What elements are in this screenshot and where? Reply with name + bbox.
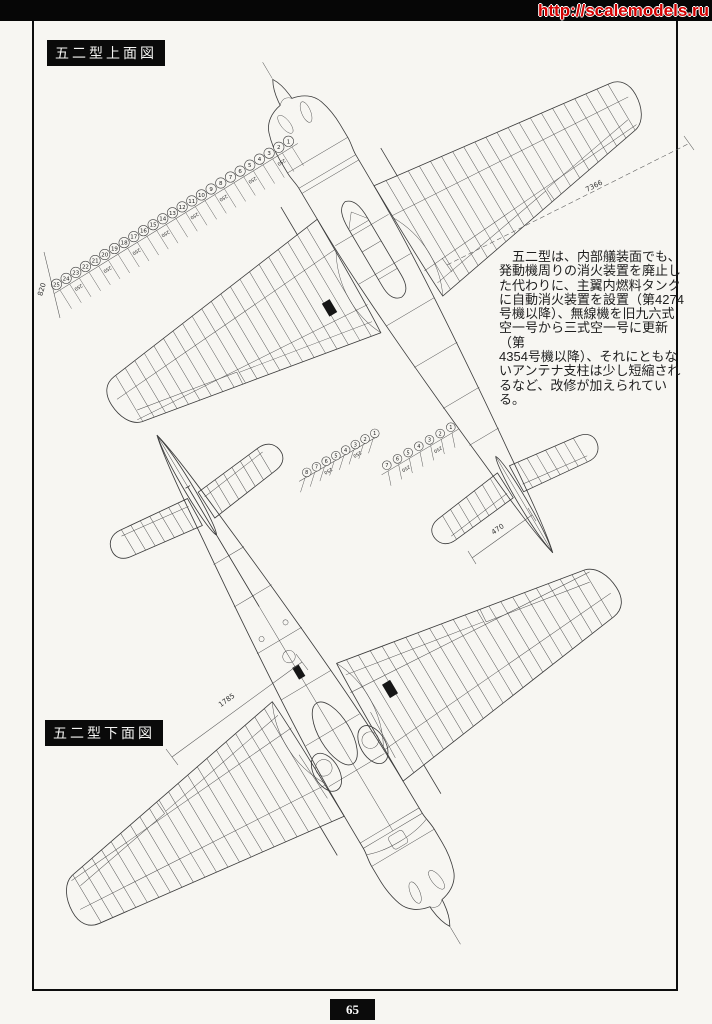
svg-text:17: 17 bbox=[130, 235, 137, 241]
svg-text:6: 6 bbox=[325, 459, 328, 465]
svg-text:250: 250 bbox=[432, 444, 443, 454]
svg-text:10: 10 bbox=[198, 193, 205, 199]
dimension-stabilizer: 470 bbox=[468, 508, 536, 564]
svg-text:13: 13 bbox=[169, 211, 176, 217]
svg-text:6: 6 bbox=[238, 169, 242, 175]
label-bottom-view: 五二型下面図 bbox=[45, 720, 163, 746]
svg-text:21: 21 bbox=[92, 258, 99, 264]
svg-text:5: 5 bbox=[407, 450, 410, 456]
svg-text:250: 250 bbox=[247, 175, 258, 185]
header-bar: http://scalemodels.ru bbox=[0, 0, 712, 21]
svg-text:20: 20 bbox=[101, 252, 108, 258]
svg-text:4: 4 bbox=[258, 157, 262, 163]
svg-text:3: 3 bbox=[354, 442, 357, 448]
svg-text:11: 11 bbox=[188, 199, 195, 205]
svg-text:250: 250 bbox=[160, 229, 171, 239]
svg-text:1: 1 bbox=[449, 425, 452, 431]
svg-text:16: 16 bbox=[140, 229, 147, 235]
svg-text:250: 250 bbox=[218, 193, 229, 203]
svg-text:7: 7 bbox=[315, 465, 318, 471]
svg-text:3: 3 bbox=[267, 151, 271, 157]
svg-text:5: 5 bbox=[248, 163, 252, 169]
svg-text:7: 7 bbox=[229, 175, 233, 181]
svg-text:2: 2 bbox=[277, 145, 281, 151]
svg-text:4: 4 bbox=[417, 444, 420, 450]
svg-text:4: 4 bbox=[344, 448, 347, 454]
svg-text:250: 250 bbox=[400, 463, 411, 473]
wingtip-dimension-label: 820 bbox=[36, 282, 47, 297]
svg-text:250: 250 bbox=[73, 282, 84, 292]
svg-text:24: 24 bbox=[63, 276, 70, 282]
svg-text:250: 250 bbox=[276, 157, 287, 167]
svg-text:14: 14 bbox=[159, 217, 166, 223]
svg-text:9: 9 bbox=[209, 187, 213, 193]
wing-station-numbers: 1225034525067825091011250121314250151617… bbox=[51, 136, 303, 309]
svg-text:7: 7 bbox=[385, 463, 388, 469]
svg-text:8: 8 bbox=[305, 470, 308, 476]
svg-text:3: 3 bbox=[428, 438, 431, 444]
site-url: http://scalemodels.ru bbox=[538, 0, 712, 21]
svg-text:250: 250 bbox=[189, 211, 200, 221]
stabilizer-station-numbers-top: 1225034525067 bbox=[382, 423, 459, 486]
svg-text:8: 8 bbox=[219, 181, 223, 187]
svg-text:2: 2 bbox=[439, 431, 442, 437]
svg-text:23: 23 bbox=[72, 270, 79, 276]
description-text: 五二型は、内部艤装面でも、 発動機周りの消火装置を廃止し た代わりに、主翼内燃料… bbox=[499, 250, 685, 407]
svg-text:25: 25 bbox=[53, 282, 60, 288]
svg-text:250: 250 bbox=[131, 246, 142, 256]
scanned-book-page: http://scalemodels.ru 五二型上面図 五二型下面図 五二型は… bbox=[0, 0, 712, 1024]
stabilizer-dimension-label: 470 bbox=[490, 522, 506, 536]
svg-text:2: 2 bbox=[363, 437, 366, 443]
aircraft-drawings: 1225034525067825091011250121314250151617… bbox=[0, 0, 712, 1024]
wing-span-dimension-label: 7366 bbox=[584, 178, 604, 193]
svg-text:15: 15 bbox=[150, 223, 157, 229]
svg-text:22: 22 bbox=[82, 264, 89, 270]
svg-text:18: 18 bbox=[121, 241, 128, 247]
svg-text:19: 19 bbox=[111, 247, 118, 253]
page-number: 65 bbox=[330, 999, 375, 1020]
svg-text:5: 5 bbox=[334, 453, 337, 459]
stabilizer-station-numbers-bottom: 12250345250678 bbox=[299, 429, 379, 492]
fuselage-dimension-label: 1785 bbox=[217, 692, 236, 709]
dimension-fuselage: 1785 bbox=[166, 654, 308, 765]
svg-text:6: 6 bbox=[396, 457, 399, 463]
svg-text:1: 1 bbox=[373, 431, 376, 437]
svg-text:1: 1 bbox=[287, 139, 291, 145]
svg-text:12: 12 bbox=[179, 205, 186, 211]
label-top-view: 五二型上面図 bbox=[47, 40, 165, 66]
svg-text:250: 250 bbox=[102, 264, 113, 274]
